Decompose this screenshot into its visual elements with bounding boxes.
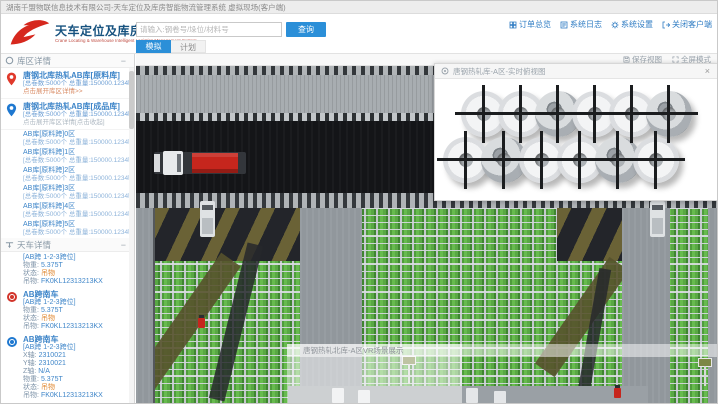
crane-field: 状态:吊物 — [23, 384, 130, 392]
crane-field: Z轴:N/A — [23, 368, 130, 376]
collapse-button[interactable]: − — [121, 54, 126, 68]
section-header-warehouse: 库区详情 − — [1, 54, 134, 68]
crane-field-label: 吊物: — [23, 392, 39, 399]
zone-name: AB库[原料跨]3区 — [23, 185, 130, 193]
section-header-crane: 天车详情 − — [1, 238, 134, 252]
fullscreen-icon — [672, 56, 679, 63]
section-title: 库区详情 — [17, 56, 51, 66]
coil[interactable] — [633, 137, 679, 183]
warehouse-expand-link[interactable]: 点击展开库区详情>> — [23, 88, 130, 96]
zone-item[interactable]: AB库[原料跨]4区[总卷数:5000个 总重量:150000.1234吨] — [1, 202, 134, 220]
search-button[interactable]: 查询 — [286, 22, 326, 37]
warehouse-list: 唐钢北库热轧AB库[原料库][总卷数:5000个 总重量:150000.1234… — [1, 68, 134, 130]
crane-field-value: 5.375T — [41, 307, 63, 314]
crane-field: 状态:吊物 — [23, 270, 130, 278]
crane-field-label: 吊物: — [23, 323, 39, 330]
crane-field-value: 吊物 — [41, 270, 55, 277]
crane-field-value: 2310021 — [39, 360, 66, 367]
tab-simulate[interactable]: 模拟 — [136, 40, 171, 53]
zone-name: AB库[原料跨]1区 — [23, 149, 130, 157]
dark-zone — [557, 208, 622, 261]
zone-item[interactable]: AB库[原料跨]5区[总卷数:5000个 总重量:150000.1234吨] — [1, 220, 134, 238]
zone-stats: [总卷数:5000个 总重量:150000.1234吨] — [23, 211, 130, 219]
crane-field-value: FK0KL12313213KX — [41, 323, 103, 330]
crane-field-value: 5.375T — [41, 376, 63, 383]
coil-divider — [556, 85, 559, 143]
header-link-label: 系统日志 — [570, 19, 602, 30]
crane-field: 物重:5.375T — [23, 262, 130, 270]
bottom-overlay-label: 唐钢热轧北库-A区VR场景展示 — [303, 346, 403, 355]
coil-divider — [630, 85, 633, 143]
crane-item[interactable]: AB跨南车[AB跨 1-2-3跨位]物重:5.375T状态:吊物吊物:FK0KL… — [1, 288, 134, 333]
aisle — [622, 208, 670, 404]
logo-swoosh-icon — [7, 17, 51, 50]
crane-item[interactable]: AB跨南车[AB跨 1-2-3跨位]X轴:2310021Y轴:2310021Z轴… — [1, 333, 134, 402]
warehouse-item[interactable]: 唐钢北库热轧AB库[原料库][总卷数:5000个 总重量:150000.1234… — [1, 68, 134, 99]
warehouse-stats: [总卷数:5000个 总重量:150000.1234吨] — [23, 111, 130, 119]
coil-divider — [502, 131, 505, 189]
warehouse-stats: [总卷数:5000个 总重量:150000.1234吨] — [23, 80, 130, 88]
crane-list: [AB跨 1-2-3跨位]物重:5.375T状态:吊物吊物:FK0KL12313… — [1, 252, 134, 402]
crane-field: [AB跨 1-2-3跨位] — [23, 299, 130, 307]
crane-field-label: 物重: — [23, 262, 39, 269]
coil-panel: 唐钢热轧库-A区-实时俯视图 × — [434, 63, 718, 201]
crane-icon — [5, 240, 14, 249]
view-tabs: 模拟 计划 — [136, 40, 206, 53]
header-link-label: 系统设置 — [621, 19, 653, 30]
crane-field: 吊物:FK0KL12313213KX — [23, 392, 130, 400]
crane-field-value: [AB跨 1-2-3跨位] — [23, 344, 76, 351]
zone-stats: [总卷数:5000个 总重量:150000.1234吨] — [23, 139, 130, 147]
mini-truck — [466, 388, 478, 403]
crane-field-label: Y轴: — [23, 360, 37, 367]
collapse-button[interactable]: − — [121, 238, 126, 252]
crane-field-value: 2310021 — [39, 352, 66, 359]
location-pin-icon — [6, 103, 17, 117]
crane-field-label: 物重: — [23, 376, 39, 383]
main-truck — [154, 151, 246, 175]
dark-zone — [535, 257, 629, 377]
header-link-syslog[interactable]: 系统日志 — [560, 19, 602, 30]
crane-field-label: X轴: — [23, 352, 37, 359]
coil-divider — [540, 131, 543, 189]
crane-field-value: 5.375T — [41, 262, 63, 269]
crane-field: Y轴:2310021 — [23, 360, 130, 368]
zone-stats: [总卷数:5000个 总重量:150000.1234吨] — [23, 193, 130, 201]
coil-divider — [593, 85, 596, 143]
crane-field-label: 状态: — [23, 270, 39, 277]
mini-truck — [494, 391, 506, 404]
crane-field-value: FK0KL12313213KX — [41, 278, 103, 285]
crane-target-icon — [7, 292, 17, 302]
sidebar-scrollbar-thumb[interactable] — [129, 71, 134, 129]
sidebar-scrollbar-track — [129, 68, 134, 404]
app-window: 湖南千盟物联信息技术有限公司-天车定位及库房智能物流管理系统 虚拟现场(客户端)… — [0, 0, 718, 404]
crane-field-label: 物重: — [23, 307, 39, 314]
crane-field-label: 状态: — [23, 315, 39, 322]
warehouse-name: 唐钢北库热轧AB库[成品库] — [23, 102, 130, 111]
save-icon — [623, 56, 630, 63]
crane-field-value: [AB跨 1-2-3跨位] — [23, 299, 76, 306]
zone-stats: [总卷数:5000个 总重量:150000.1234吨] — [23, 229, 130, 237]
mini-truck — [200, 201, 215, 237]
crane-item[interactable]: [AB跨 1-2-3跨位]物重:5.375T状态:吊物吊物:FK0KL12313… — [1, 252, 134, 288]
forklift — [198, 318, 205, 328]
header-link-label: 关闭客户端 — [672, 19, 712, 30]
app-header: 天车定位及库房智能物流管理系统 Crane Locating & Warehou… — [1, 14, 717, 54]
header-link-orders[interactable]: 订单总览 — [509, 19, 551, 30]
crane-field: 物重:5.375T — [23, 307, 130, 315]
zone-item[interactable]: AB库[原料跨]3区[总卷数:5000个 总重量:150000.1234吨] — [1, 184, 134, 202]
zone-item[interactable]: AB库[原料跨]0区[总卷数:5000个 总重量:150000.1234吨] — [1, 130, 134, 148]
syslog-icon — [560, 21, 568, 29]
warehouse-item[interactable]: 唐钢北库热轧AB库[成品库][总卷数:5000个 总重量:150000.1234… — [1, 99, 134, 130]
zone-name: AB库[原料跨]0区 — [23, 131, 130, 139]
crane-field-value: 吊物 — [41, 384, 55, 391]
zone-stats: [总卷数:5000个 总重量:150000.1234吨] — [23, 175, 130, 183]
settings-icon — [611, 21, 619, 29]
aisle — [136, 208, 155, 404]
header-link-close-client[interactable]: 关闭客户端 — [662, 19, 712, 30]
warehouse-name: 唐钢北库热轧AB库[原料库] — [23, 71, 130, 80]
bottom-overlay-strip: 唐钢热轧北库-A区VR场景展示 — [287, 344, 718, 357]
circle-dot-icon — [441, 67, 449, 75]
orders-icon — [509, 21, 517, 29]
crane-field: 吊物:FK0KL12313213KX — [23, 323, 130, 331]
zone-list: AB库[原料跨]0区[总卷数:5000个 总重量:150000.1234吨]AB… — [1, 130, 134, 238]
crane-field: 状态:吊物 — [23, 315, 130, 323]
coil-divider — [578, 131, 581, 189]
viewport: 保存视图 全屏模式 — [136, 54, 718, 404]
crane-field-value: [AB跨 1-2-3跨位] — [23, 254, 76, 261]
warehouse-expand-link[interactable]: 点击展开库区详情[点击收起] — [23, 119, 130, 127]
crane-name: AB跨南车 — [23, 335, 130, 344]
header-link-label: 订单总览 — [519, 19, 551, 30]
coil[interactable] — [646, 91, 692, 137]
header-links: 订单总览系统日志系统设置关闭客户端 — [509, 19, 712, 30]
area-circle-icon — [5, 56, 14, 65]
crane-field-value: 吊物 — [41, 315, 55, 322]
crane-field-label: 吊物: — [23, 278, 39, 285]
close-client-icon — [662, 21, 670, 29]
coil-divider — [654, 131, 657, 189]
coil-divider — [616, 131, 619, 189]
zone-name: AB库[原料跨]4区 — [23, 203, 130, 211]
crane-field-label: Z轴: — [23, 368, 36, 375]
crane-field: [AB跨 1-2-3跨位] — [23, 344, 130, 352]
zone-name: AB库[原料跨]5区 — [23, 221, 130, 229]
coil-divider — [519, 85, 522, 143]
header-link-settings[interactable]: 系统设置 — [611, 19, 653, 30]
zone-stats: [总卷数:5000个 总重量:150000.1234吨] — [23, 157, 130, 165]
crane-field: 吊物:FK0KL12313213KX — [23, 278, 130, 286]
coil-divider — [464, 131, 467, 189]
coil-panel-body — [435, 79, 717, 200]
mini-truck — [650, 201, 665, 237]
forklift — [614, 388, 621, 398]
coil-panel-title: 唐钢热轧库-A区-实时俯视图 — [453, 67, 546, 76]
sidebar: 库区详情 − 唐钢北库热轧AB库[原料库][总卷数:5000个 总重量:1500… — [1, 54, 135, 404]
tab-plan[interactable]: 计划 — [171, 40, 206, 53]
coil-divider — [667, 85, 670, 143]
crane-field: [AB跨 1-2-3跨位] — [23, 254, 130, 262]
crane-field: 物重:5.375T — [23, 376, 130, 384]
search-input[interactable] — [136, 22, 282, 37]
window-title: 湖南千盟物联信息技术有限公司-天车定位及库房智能物流管理系统 虚拟现场(客户端) — [1, 1, 717, 14]
close-icon[interactable]: × — [705, 64, 710, 79]
coil-panel-header: 唐钢热轧库-A区-实时俯视图 × — [435, 64, 717, 79]
crane-field: X轴:2310021 — [23, 352, 130, 360]
dark-zone — [155, 208, 302, 261]
crane-field-label: 状态: — [23, 384, 39, 391]
zone-item[interactable]: AB库[原料跨]2区[总卷数:5000个 总重量:150000.1234吨] — [1, 166, 134, 184]
crane-target-icon — [7, 337, 17, 347]
zone-name: AB库[原料跨]2区 — [23, 167, 130, 175]
crane-field-value: FK0KL12313213KX — [41, 392, 103, 399]
zone-item[interactable]: AB库[原料跨]1区[总卷数:5000个 总重量:150000.1234吨] — [1, 148, 134, 166]
crane-name: AB跨南车 — [23, 290, 130, 299]
crane-field-value: N/A — [38, 368, 50, 375]
section-title: 天车详情 — [17, 240, 51, 250]
location-pin-icon — [6, 72, 17, 86]
signpost — [698, 358, 712, 386]
coil-divider — [482, 85, 485, 143]
